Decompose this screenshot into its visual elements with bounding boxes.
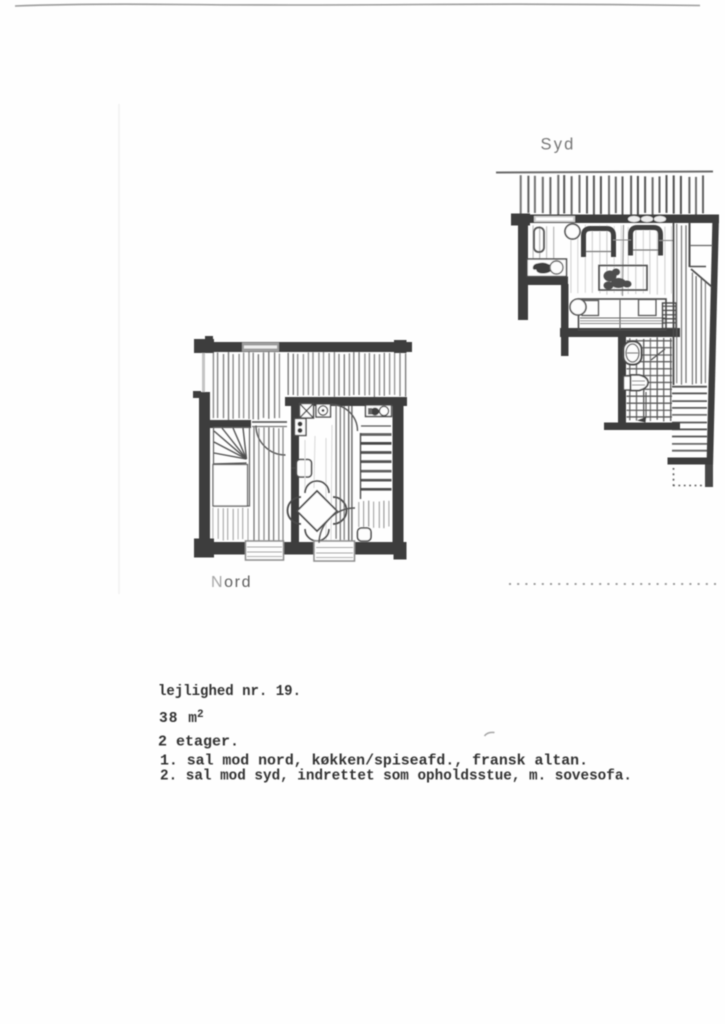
svg-text:Syd: Syd bbox=[541, 136, 576, 154]
svg-text:lejlighed nr. 19.: lejlighed nr. 19. bbox=[158, 684, 301, 700]
svg-text:Nord: Nord bbox=[211, 574, 252, 591]
svg-text:1. sal mod nord, køkken/spisea: 1. sal mod nord, køkken/spiseafd., frans… bbox=[160, 754, 588, 770]
svg-text:38 m: 38 m bbox=[159, 711, 197, 727]
svg-text:2 etager.: 2 etager. bbox=[158, 735, 239, 751]
svg-text:2: 2 bbox=[197, 709, 204, 721]
svg-text:2. sal mod syd, indrettet som: 2. sal mod syd, indrettet som opholdsstu… bbox=[160, 769, 632, 785]
